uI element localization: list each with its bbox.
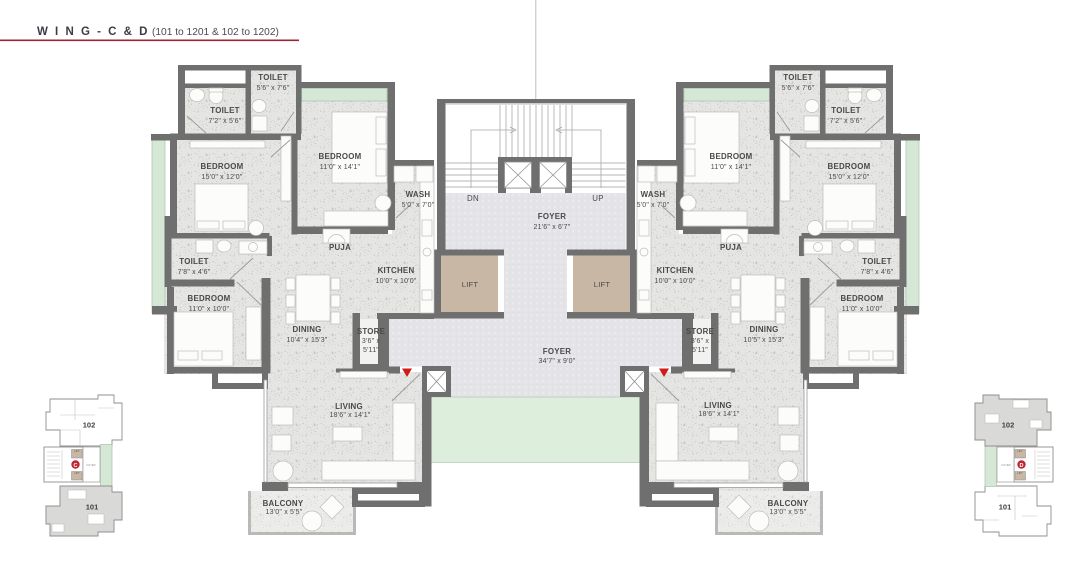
svg-text:LIFT: LIFT bbox=[74, 449, 80, 453]
svg-text:LIFT: LIFT bbox=[1017, 471, 1023, 475]
svg-text:5'0" x 7'0": 5'0" x 7'0" bbox=[402, 202, 435, 209]
svg-text:BALCONY: BALCONY bbox=[768, 499, 809, 508]
svg-text:TOILET: TOILET bbox=[258, 73, 287, 82]
svg-text:LIFT: LIFT bbox=[74, 471, 80, 475]
svg-text:STORE: STORE bbox=[357, 327, 385, 336]
svg-text:UP: UP bbox=[592, 194, 603, 203]
svg-text:W I N G - C & D: W I N G - C & D bbox=[37, 26, 149, 38]
svg-text:10'5" x 15'3": 10'5" x 15'3" bbox=[744, 337, 785, 344]
svg-text:BEDROOM: BEDROOM bbox=[828, 162, 871, 171]
svg-text:TOILET: TOILET bbox=[210, 106, 239, 115]
svg-text:10'4" x 15'3": 10'4" x 15'3" bbox=[287, 337, 328, 344]
svg-text:LIVING: LIVING bbox=[335, 402, 363, 411]
svg-text:DN: DN bbox=[467, 194, 479, 203]
svg-text:13'0" x 5'5": 13'0" x 5'5" bbox=[770, 509, 807, 516]
svg-text:13'0" x 5'5": 13'0" x 5'5" bbox=[266, 509, 303, 516]
svg-text:DINING: DINING bbox=[292, 325, 321, 334]
svg-text:3'6" x: 3'6" x bbox=[362, 338, 381, 345]
svg-text:C: C bbox=[74, 463, 78, 469]
svg-text:BEDROOM: BEDROOM bbox=[710, 152, 753, 161]
svg-text:5'6" x 7'6": 5'6" x 7'6" bbox=[257, 85, 290, 92]
svg-text:LIFT: LIFT bbox=[594, 280, 611, 289]
svg-text:BEDROOM: BEDROOM bbox=[188, 294, 231, 303]
svg-text:LIFT: LIFT bbox=[1017, 449, 1023, 453]
svg-text:TOILET: TOILET bbox=[862, 257, 891, 266]
svg-text:STORE: STORE bbox=[686, 327, 714, 336]
svg-text:LIVING: LIVING bbox=[704, 401, 732, 410]
svg-text:DINING: DINING bbox=[749, 325, 778, 334]
svg-text:BALCONY: BALCONY bbox=[263, 499, 304, 508]
svg-text:101: 101 bbox=[999, 503, 1012, 512]
svg-text:PUJA: PUJA bbox=[329, 243, 351, 252]
svg-text:11'0" x 14'1": 11'0" x 14'1" bbox=[320, 164, 361, 171]
svg-text:5'11": 5'11" bbox=[363, 347, 379, 354]
svg-text:PUJA: PUJA bbox=[720, 243, 742, 252]
svg-text:BEDROOM: BEDROOM bbox=[841, 294, 884, 303]
svg-text:FOYER: FOYER bbox=[87, 463, 96, 467]
svg-text:21'6" x 6'7": 21'6" x 6'7" bbox=[534, 224, 571, 231]
svg-text:D: D bbox=[1020, 463, 1024, 469]
svg-text:18'6" x 14'1": 18'6" x 14'1" bbox=[330, 412, 371, 419]
svg-text:11'0" x 10'0": 11'0" x 10'0" bbox=[842, 306, 883, 313]
svg-text:WASH: WASH bbox=[641, 190, 666, 199]
svg-text:10'0" x 10'0": 10'0" x 10'0" bbox=[376, 278, 417, 285]
svg-text:BEDROOM: BEDROOM bbox=[201, 162, 244, 171]
svg-text:102: 102 bbox=[1002, 421, 1015, 430]
svg-text:102: 102 bbox=[83, 421, 96, 430]
svg-text:(101 to 1201 & 102 to 1202): (101 to 1201 & 102 to 1202) bbox=[152, 27, 279, 38]
svg-text:11'0" x 10'0": 11'0" x 10'0" bbox=[189, 306, 230, 313]
svg-text:FOYER: FOYER bbox=[543, 347, 571, 356]
svg-text:5'6" x 7'6": 5'6" x 7'6" bbox=[782, 85, 815, 92]
svg-text:TOILET: TOILET bbox=[783, 73, 812, 82]
svg-text:FOYER: FOYER bbox=[538, 212, 566, 221]
svg-text:7'8" x 4'6": 7'8" x 4'6" bbox=[178, 269, 211, 276]
svg-text:KITCHEN: KITCHEN bbox=[378, 266, 415, 275]
svg-text:10'0" x 10'0": 10'0" x 10'0" bbox=[655, 278, 696, 285]
svg-text:18'6" x 14'1": 18'6" x 14'1" bbox=[699, 411, 740, 418]
svg-text:5'11": 5'11" bbox=[692, 347, 708, 354]
svg-text:3'6" x: 3'6" x bbox=[691, 338, 710, 345]
svg-text:15'0" x 12'0": 15'0" x 12'0" bbox=[829, 174, 870, 181]
svg-text:TOILET: TOILET bbox=[179, 257, 208, 266]
svg-text:WASH: WASH bbox=[406, 190, 431, 199]
svg-text:5'0" x 7'0": 5'0" x 7'0" bbox=[637, 202, 670, 209]
svg-text:FOYER: FOYER bbox=[1002, 463, 1011, 467]
svg-text:TOILET: TOILET bbox=[831, 106, 860, 115]
svg-text:7'8" x 4'6": 7'8" x 4'6" bbox=[861, 269, 894, 276]
svg-text:BEDROOM: BEDROOM bbox=[319, 152, 362, 161]
svg-text:15'0" x 12'0": 15'0" x 12'0" bbox=[202, 174, 243, 181]
svg-text:7'2" x 5'6": 7'2" x 5'6" bbox=[830, 118, 863, 125]
svg-text:34'7" x 9'0": 34'7" x 9'0" bbox=[539, 358, 576, 365]
svg-text:LIFT: LIFT bbox=[462, 280, 479, 289]
svg-text:KITCHEN: KITCHEN bbox=[657, 266, 694, 275]
svg-text:101: 101 bbox=[86, 503, 99, 512]
svg-text:11'0" x 14'1": 11'0" x 14'1" bbox=[711, 164, 752, 171]
svg-text:7'2" x 5'6": 7'2" x 5'6" bbox=[209, 118, 242, 125]
